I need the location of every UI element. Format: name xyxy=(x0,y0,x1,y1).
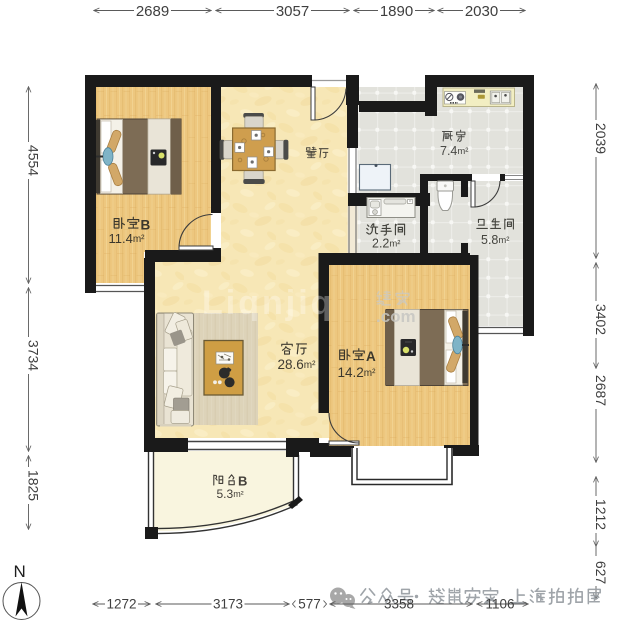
svg-text:3358: 3358 xyxy=(384,597,414,612)
svg-text:627: 627 xyxy=(593,561,609,585)
svg-text:3057: 3057 xyxy=(276,3,309,20)
svg-text:5.3m²: 5.3m² xyxy=(217,487,244,501)
svg-text:B: B xyxy=(141,218,151,233)
svg-text:2687: 2687 xyxy=(593,375,609,406)
svg-text:1272: 1272 xyxy=(106,597,136,612)
svg-text:7.4m²: 7.4m² xyxy=(440,144,468,158)
svg-text:2.2m²: 2.2m² xyxy=(372,237,400,251)
svg-text:1212: 1212 xyxy=(593,499,609,530)
svg-text:2689: 2689 xyxy=(136,3,169,20)
svg-text:14.2m²: 14.2m² xyxy=(338,365,377,380)
svg-text:1825: 1825 xyxy=(26,470,42,501)
svg-text:3402: 3402 xyxy=(593,304,609,335)
svg-text:2039: 2039 xyxy=(593,123,609,154)
svg-text:A: A xyxy=(366,349,376,364)
svg-text:1106: 1106 xyxy=(485,597,514,612)
svg-text:28.6m²: 28.6m² xyxy=(278,357,317,372)
svg-text:3734: 3734 xyxy=(26,340,42,371)
svg-text:B: B xyxy=(238,474,247,489)
svg-text:4554: 4554 xyxy=(26,145,42,176)
svg-text:1890: 1890 xyxy=(380,3,413,20)
svg-text:Liqnjiq: Liqnjiq xyxy=(202,284,334,322)
svg-text:3173: 3173 xyxy=(213,597,243,612)
svg-text:577: 577 xyxy=(298,597,321,612)
svg-text:5.8m²: 5.8m² xyxy=(481,233,509,247)
svg-text:.com: .com xyxy=(376,307,416,326)
svg-text:11.4m²: 11.4m² xyxy=(109,231,146,246)
svg-text:N: N xyxy=(14,562,26,581)
svg-text:2030: 2030 xyxy=(465,3,498,20)
